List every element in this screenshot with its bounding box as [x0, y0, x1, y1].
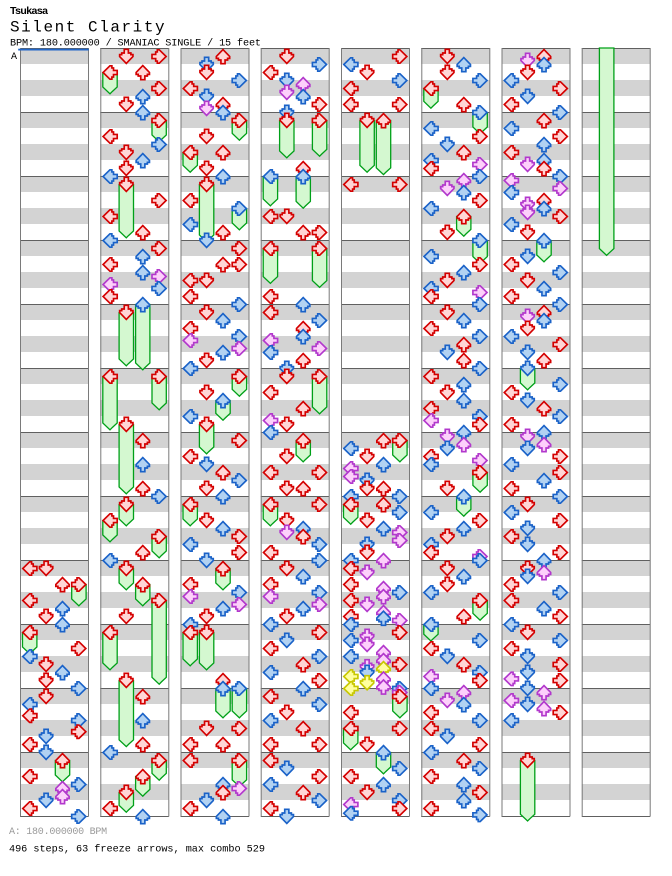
- svg-text:496 steps, 63 freeze arrows, m: 496 steps, 63 freeze arrows, max combo 5…: [9, 844, 265, 856]
- svg-text:BPM: 180.000000 / SMANIAC SING: BPM: 180.000000 / SMANIAC SINGLE / 15 fe…: [10, 38, 261, 50]
- svg-text:Silent Clarity: Silent Clarity: [10, 19, 166, 37]
- svg-text:Tsukasa: Tsukasa: [10, 5, 48, 17]
- svg-text:A: 180.000000 BPM: A: 180.000000 BPM: [9, 827, 107, 838]
- svg-text:A: A: [11, 52, 17, 63]
